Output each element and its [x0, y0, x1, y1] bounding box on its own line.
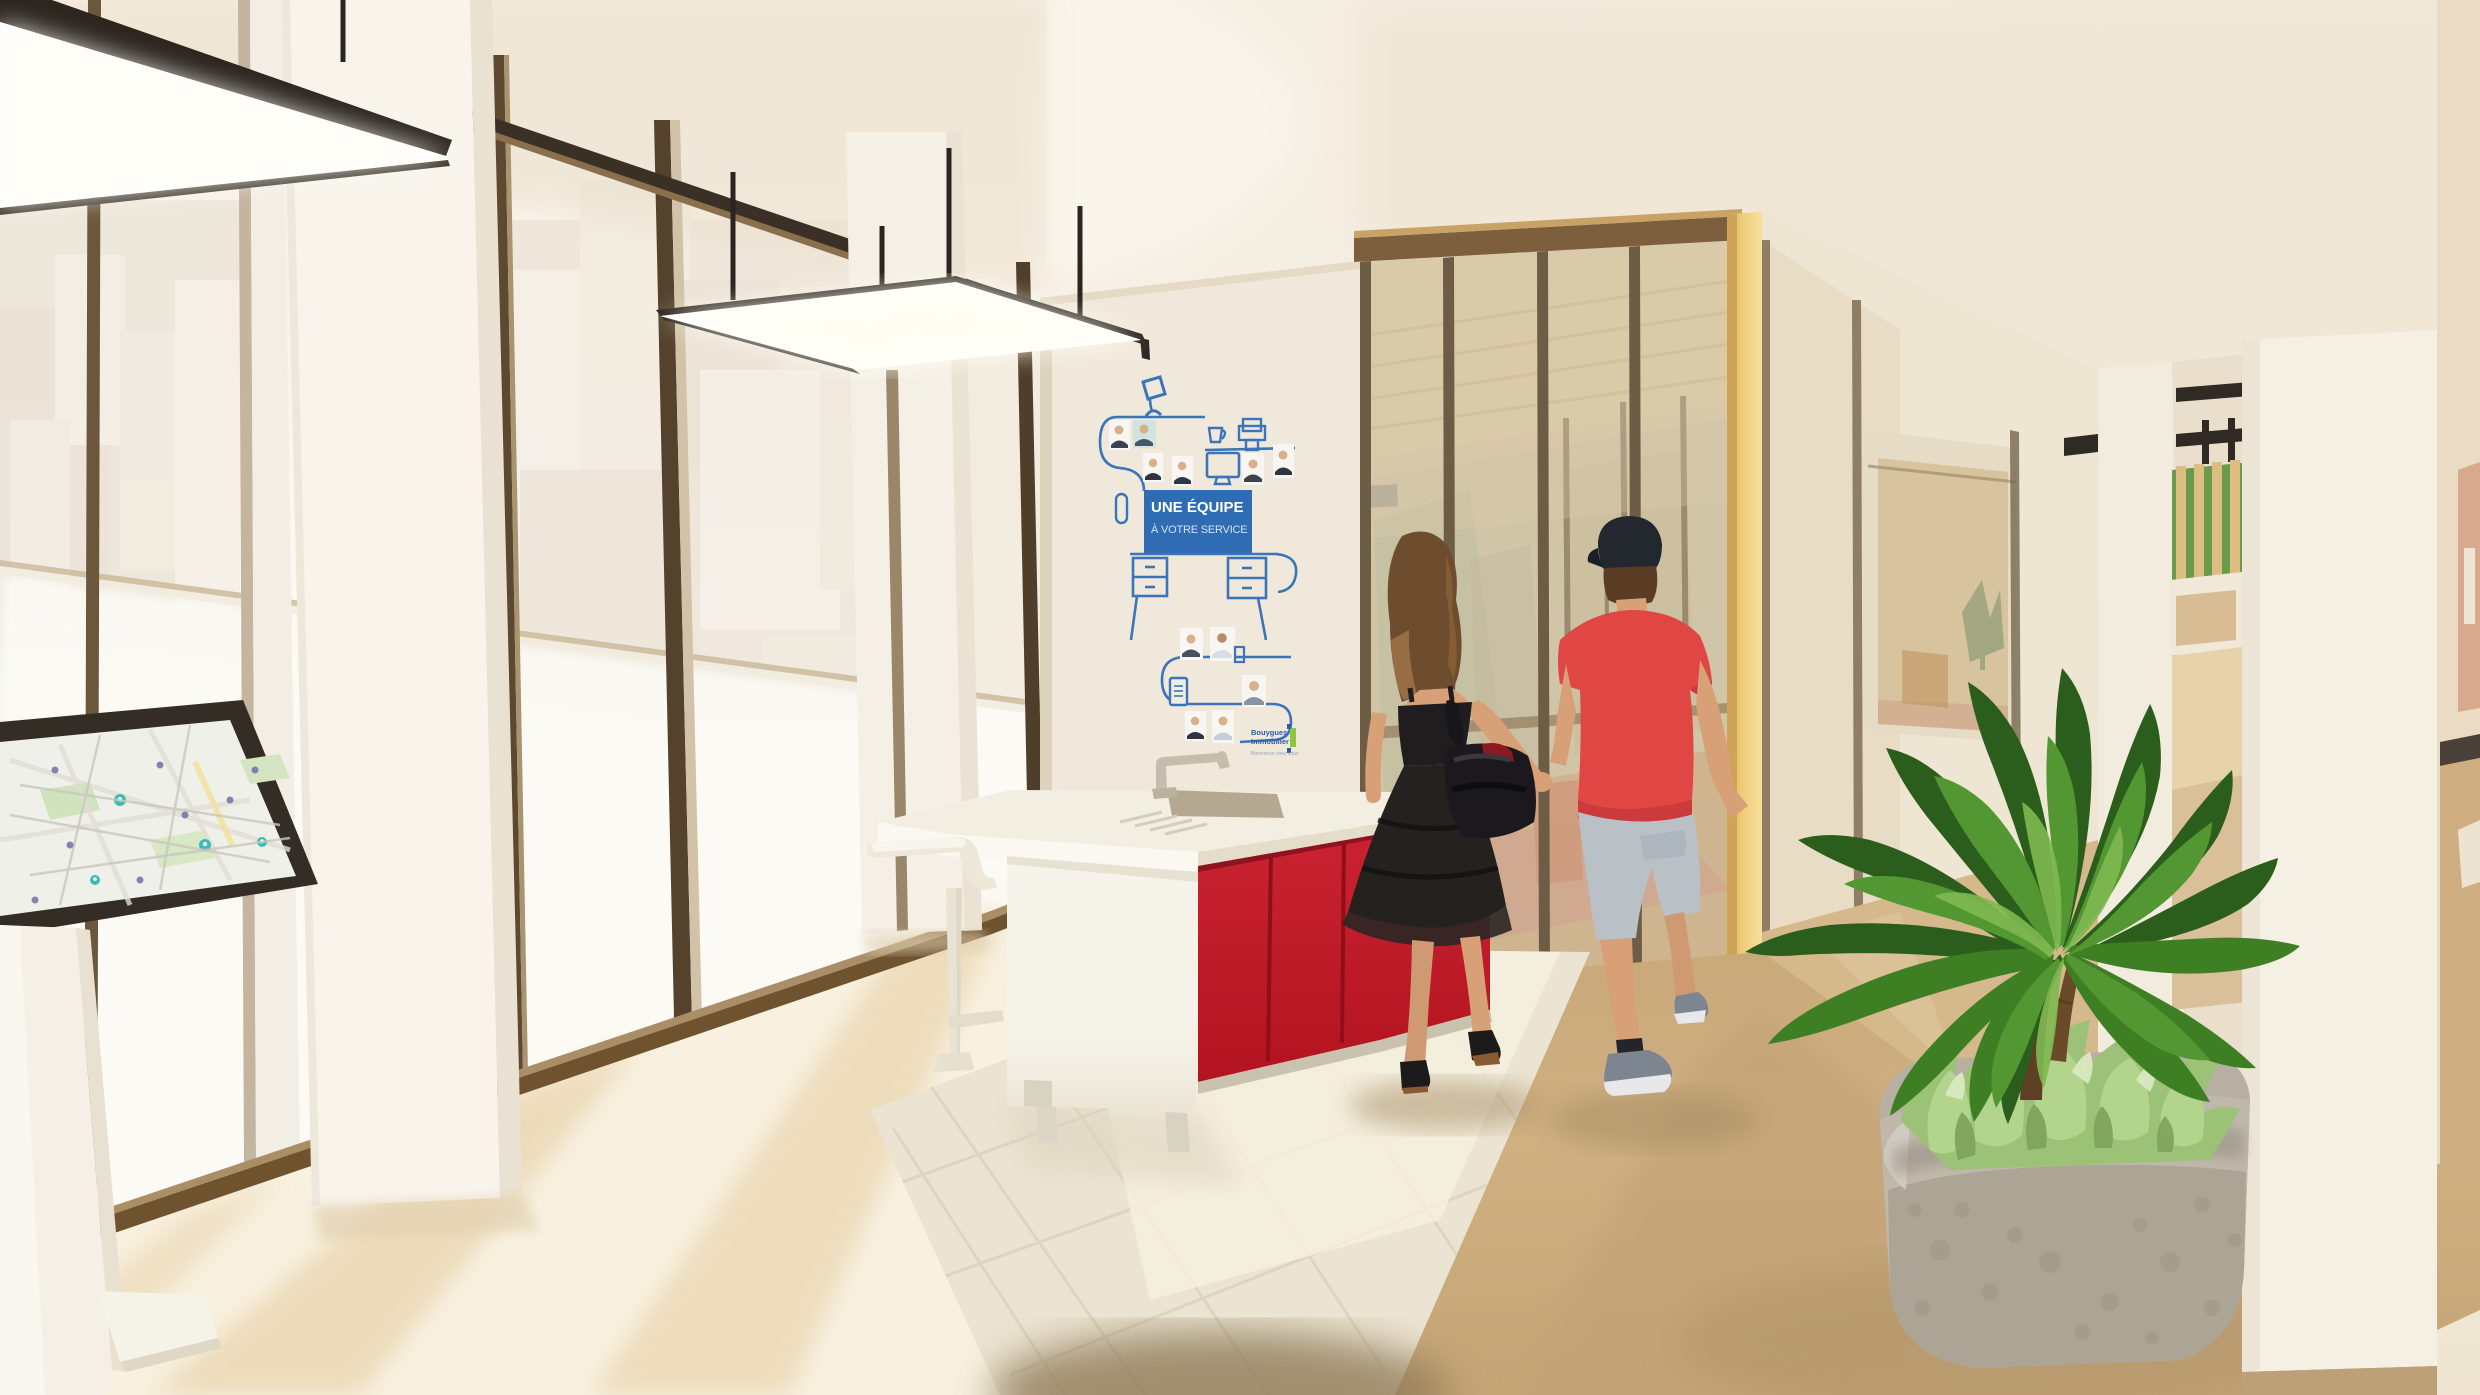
svg-text:Bienvenue chez vous: Bienvenue chez vous — [1251, 751, 1299, 757]
svg-text:UNE ÉQUIPE: UNE ÉQUIPE — [1151, 499, 1244, 516]
svg-text:Immobilier: Immobilier — [1251, 737, 1289, 746]
svg-text:À VOTRE SERVICE: À VOTRE SERVICE — [1151, 523, 1247, 536]
svg-text:Bouygues: Bouygues — [1251, 728, 1287, 737]
